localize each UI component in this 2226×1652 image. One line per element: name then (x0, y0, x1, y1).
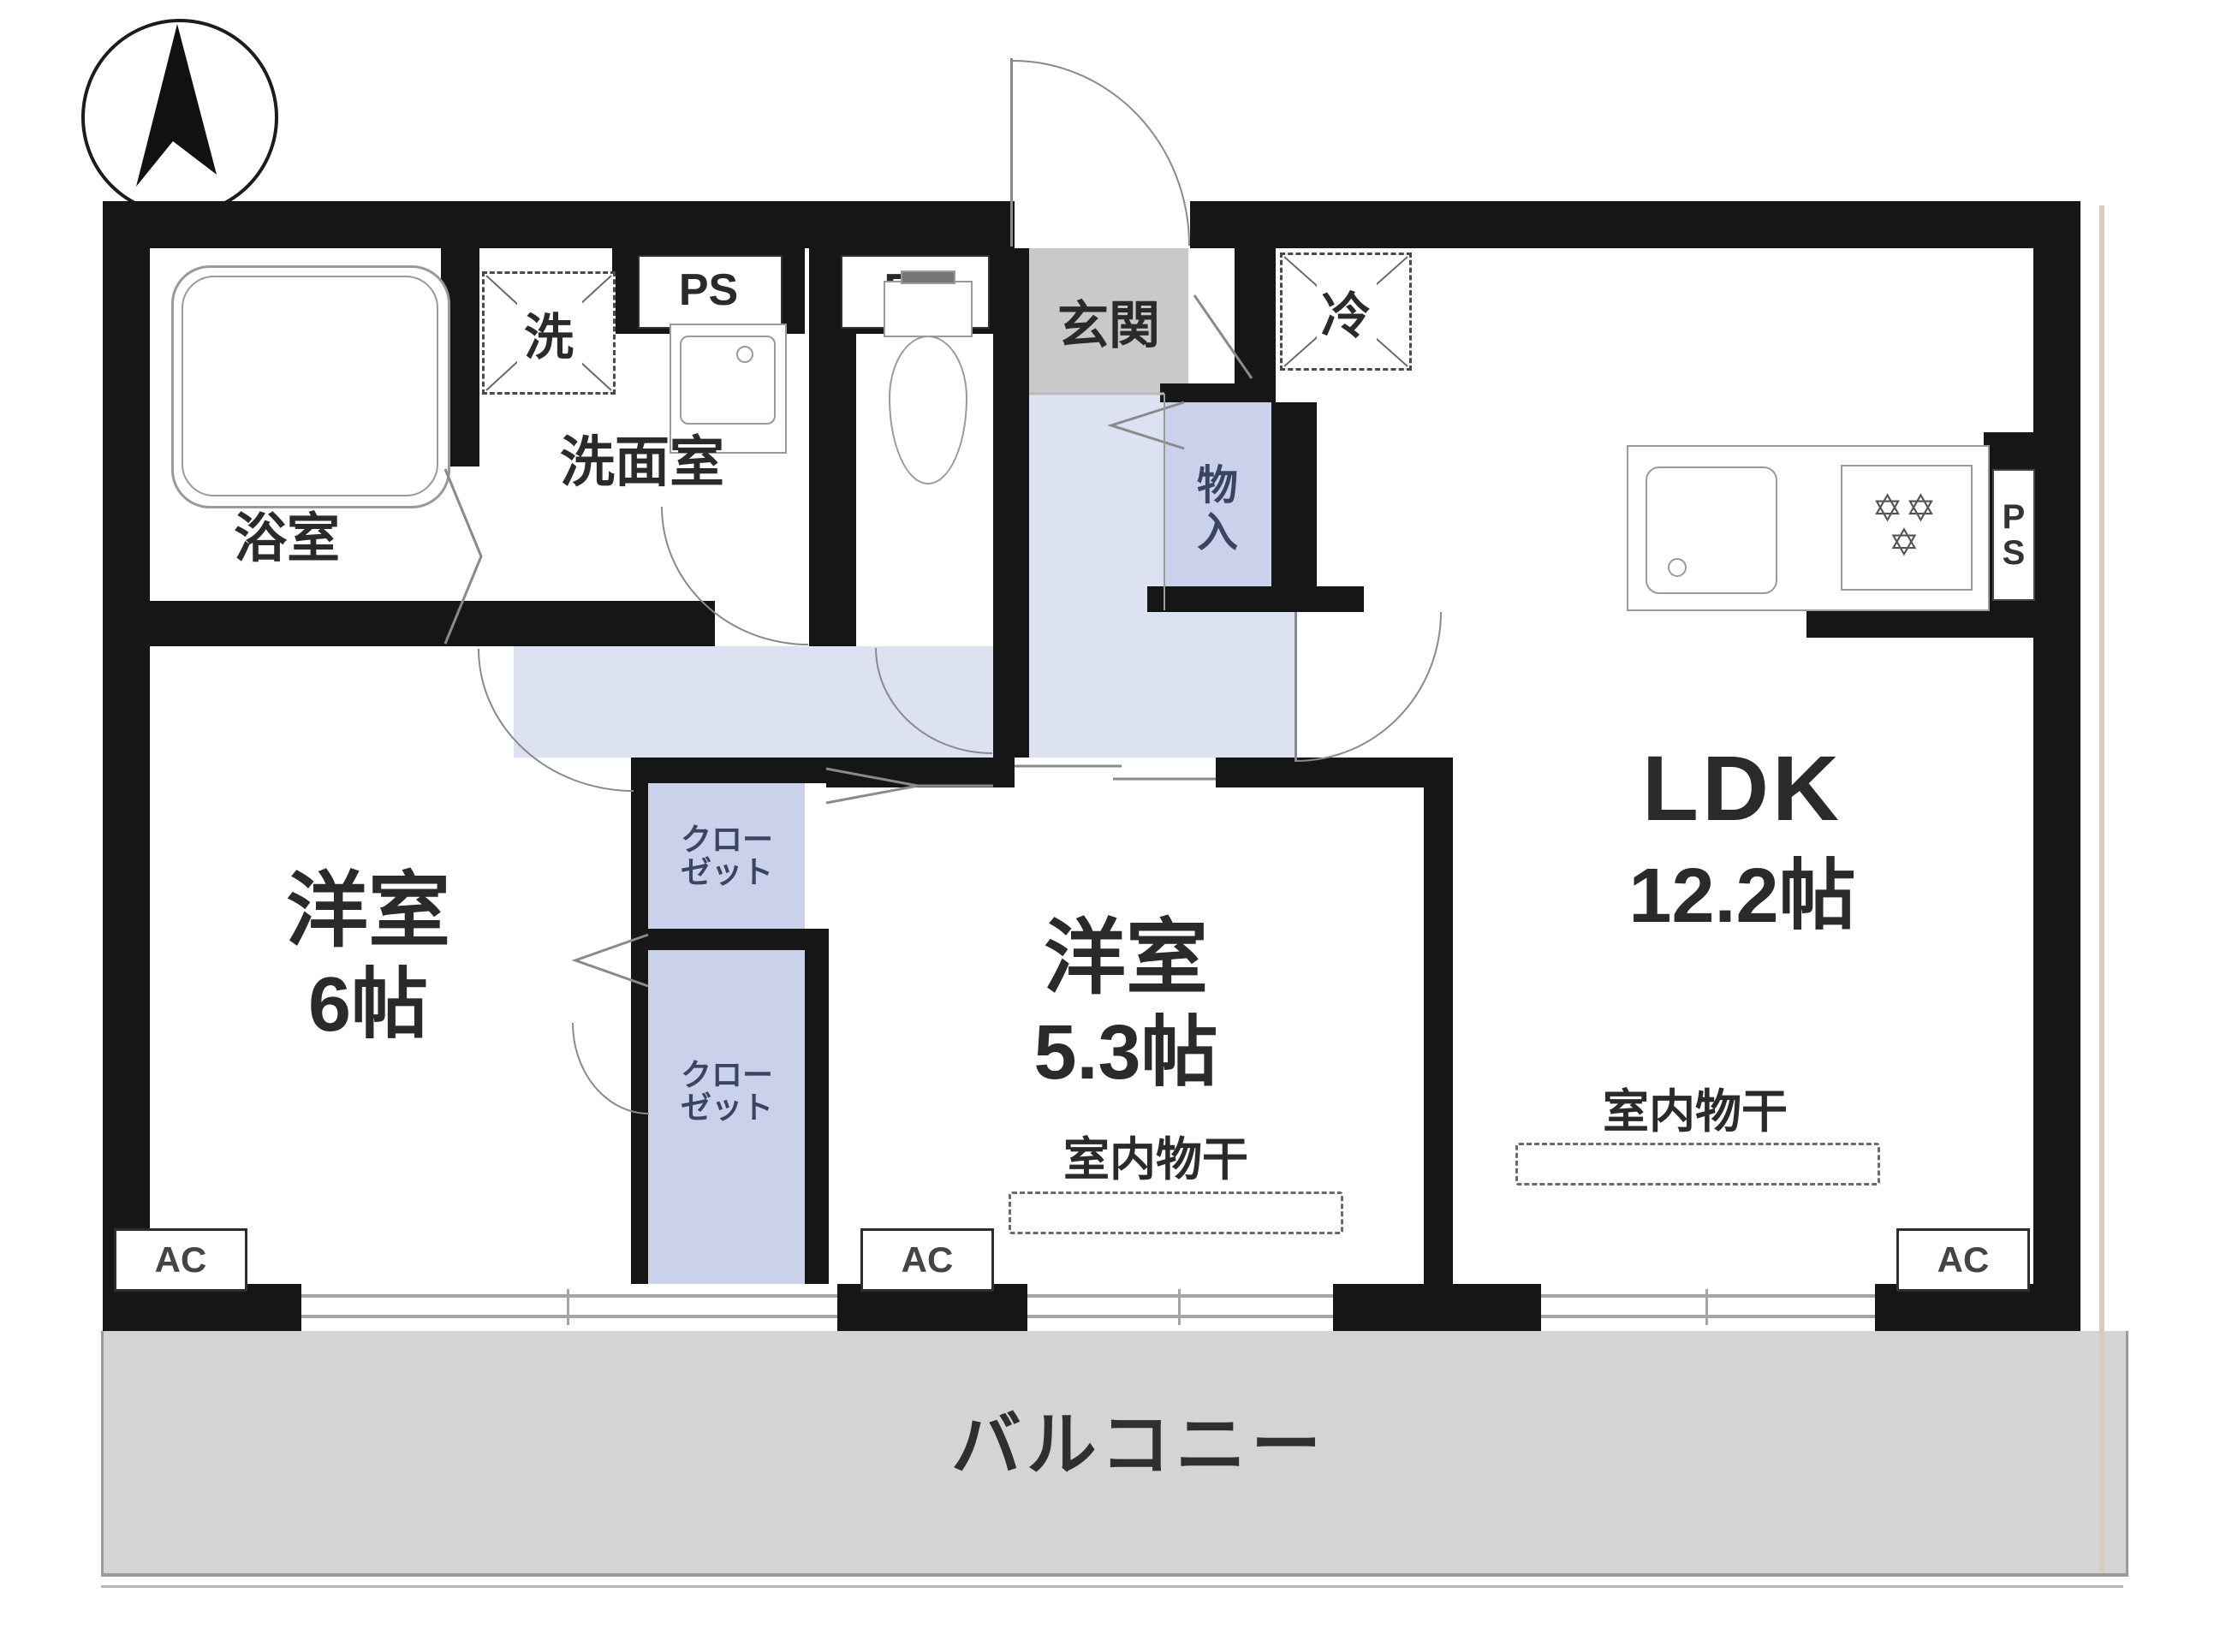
ac-box-west6: AC (114, 1228, 247, 1292)
storage-label: 物入 (1175, 441, 1260, 578)
wall-closet-top (631, 758, 826, 783)
washbasin-faucet-icon (736, 346, 753, 363)
bathtub-inner-line (182, 276, 438, 496)
fridge-label: 冷 (1321, 276, 1371, 348)
closet-upper-line2: ゼット (681, 856, 773, 888)
fridge-box: 冷 (1280, 253, 1412, 371)
drying-rail-west53 (1009, 1191, 1343, 1234)
wall-west53-ldk (1424, 758, 1453, 1314)
closet-lower-line1: クロー (681, 1059, 773, 1091)
drying-label-west53: 室内物干 (1027, 1128, 1284, 1181)
ac-box-west53: AC (860, 1228, 994, 1292)
window-west6 (301, 1284, 837, 1331)
wall-bath-bottom (103, 601, 514, 646)
closet-upper-label: クロー ゼット (658, 813, 796, 899)
wall-entrance-ldk-stub (1235, 248, 1276, 394)
washroom-label: 洗面室 (518, 424, 766, 492)
west6-size: 6帖 (253, 952, 484, 1042)
window-ldk (1541, 1284, 1875, 1331)
ps-label-kitchen: PS (1992, 469, 2035, 601)
ac-label-2: AC (902, 1239, 954, 1281)
ps-label-1: PS (638, 255, 779, 325)
storage-label-text: 物入 (1195, 462, 1240, 556)
west53-name: 洋室 (980, 903, 1271, 997)
ps-kitchen-text: PS (2002, 499, 2026, 571)
entrance-label: 玄関 (1036, 265, 1181, 377)
washer-label: 洗 (524, 297, 574, 369)
wall-west53-top-b (1216, 758, 1453, 787)
right-side-strip (2099, 205, 2104, 1573)
wall-closet-left (631, 758, 648, 1284)
west53-size: 5.3帖 (955, 1000, 1297, 1090)
wall-closet-right-lower (805, 929, 829, 1284)
drying-label-ldk: 室内物干 (1567, 1080, 1824, 1133)
entrance-door-arc (1013, 60, 1190, 246)
ac-label-3: AC (1937, 1239, 1990, 1281)
wall-left (103, 201, 150, 1331)
wall-right (2033, 201, 2080, 1331)
bath-label: 浴室 (193, 501, 381, 565)
kitchen-sink-drain-icon (1668, 558, 1687, 577)
wall-west53-top-a (826, 758, 1015, 787)
balcony-outer-line (101, 1585, 2123, 1588)
closet-lower-line2: ゼット (681, 1091, 773, 1124)
kitchen-sink-icon (1646, 466, 1777, 594)
window-west53 (1027, 1284, 1333, 1331)
washbasin-bowl-icon (680, 336, 776, 425)
ac-box-ldk: AC (1896, 1228, 2030, 1292)
ldk-size: 12.2帖 (1592, 843, 1892, 933)
ldk-door-arc (1296, 612, 1442, 762)
compass-arrow-icon (81, 19, 278, 216)
wall-closet-divider (631, 929, 826, 950)
closet-lower-label: クロー ゼット (658, 1049, 796, 1134)
wall-storage-right (1271, 402, 1317, 610)
toilet-bowl-icon (889, 336, 967, 484)
closet-lower-door-arc (572, 1023, 649, 1114)
floor-plan: PS PS PS ✡✡✡ 洗 冷 (0, 0, 2226, 1652)
ac-label-1: AC (155, 1239, 207, 1281)
stove-burner-icons: ✡✡✡ (1841, 465, 1969, 587)
balcony-label: バルコニー (873, 1391, 1404, 1485)
closet-upper-line1: クロー (681, 823, 773, 856)
wall-storage-top (1160, 383, 1276, 402)
washer-box: 洗 (482, 271, 616, 395)
wall-washroom-bottom (514, 601, 715, 646)
west6-door-arc (478, 649, 634, 792)
toilet-tank-icon (884, 281, 973, 337)
toilet-lid-icon (901, 270, 955, 284)
wall-storage-bottom (1147, 586, 1364, 612)
hallway-floor-under-storage (1164, 610, 1295, 758)
ldk-name: LDK (1610, 736, 1875, 839)
drying-rail-ldk (1515, 1143, 1880, 1186)
west6-name: 洋室 (223, 856, 514, 950)
